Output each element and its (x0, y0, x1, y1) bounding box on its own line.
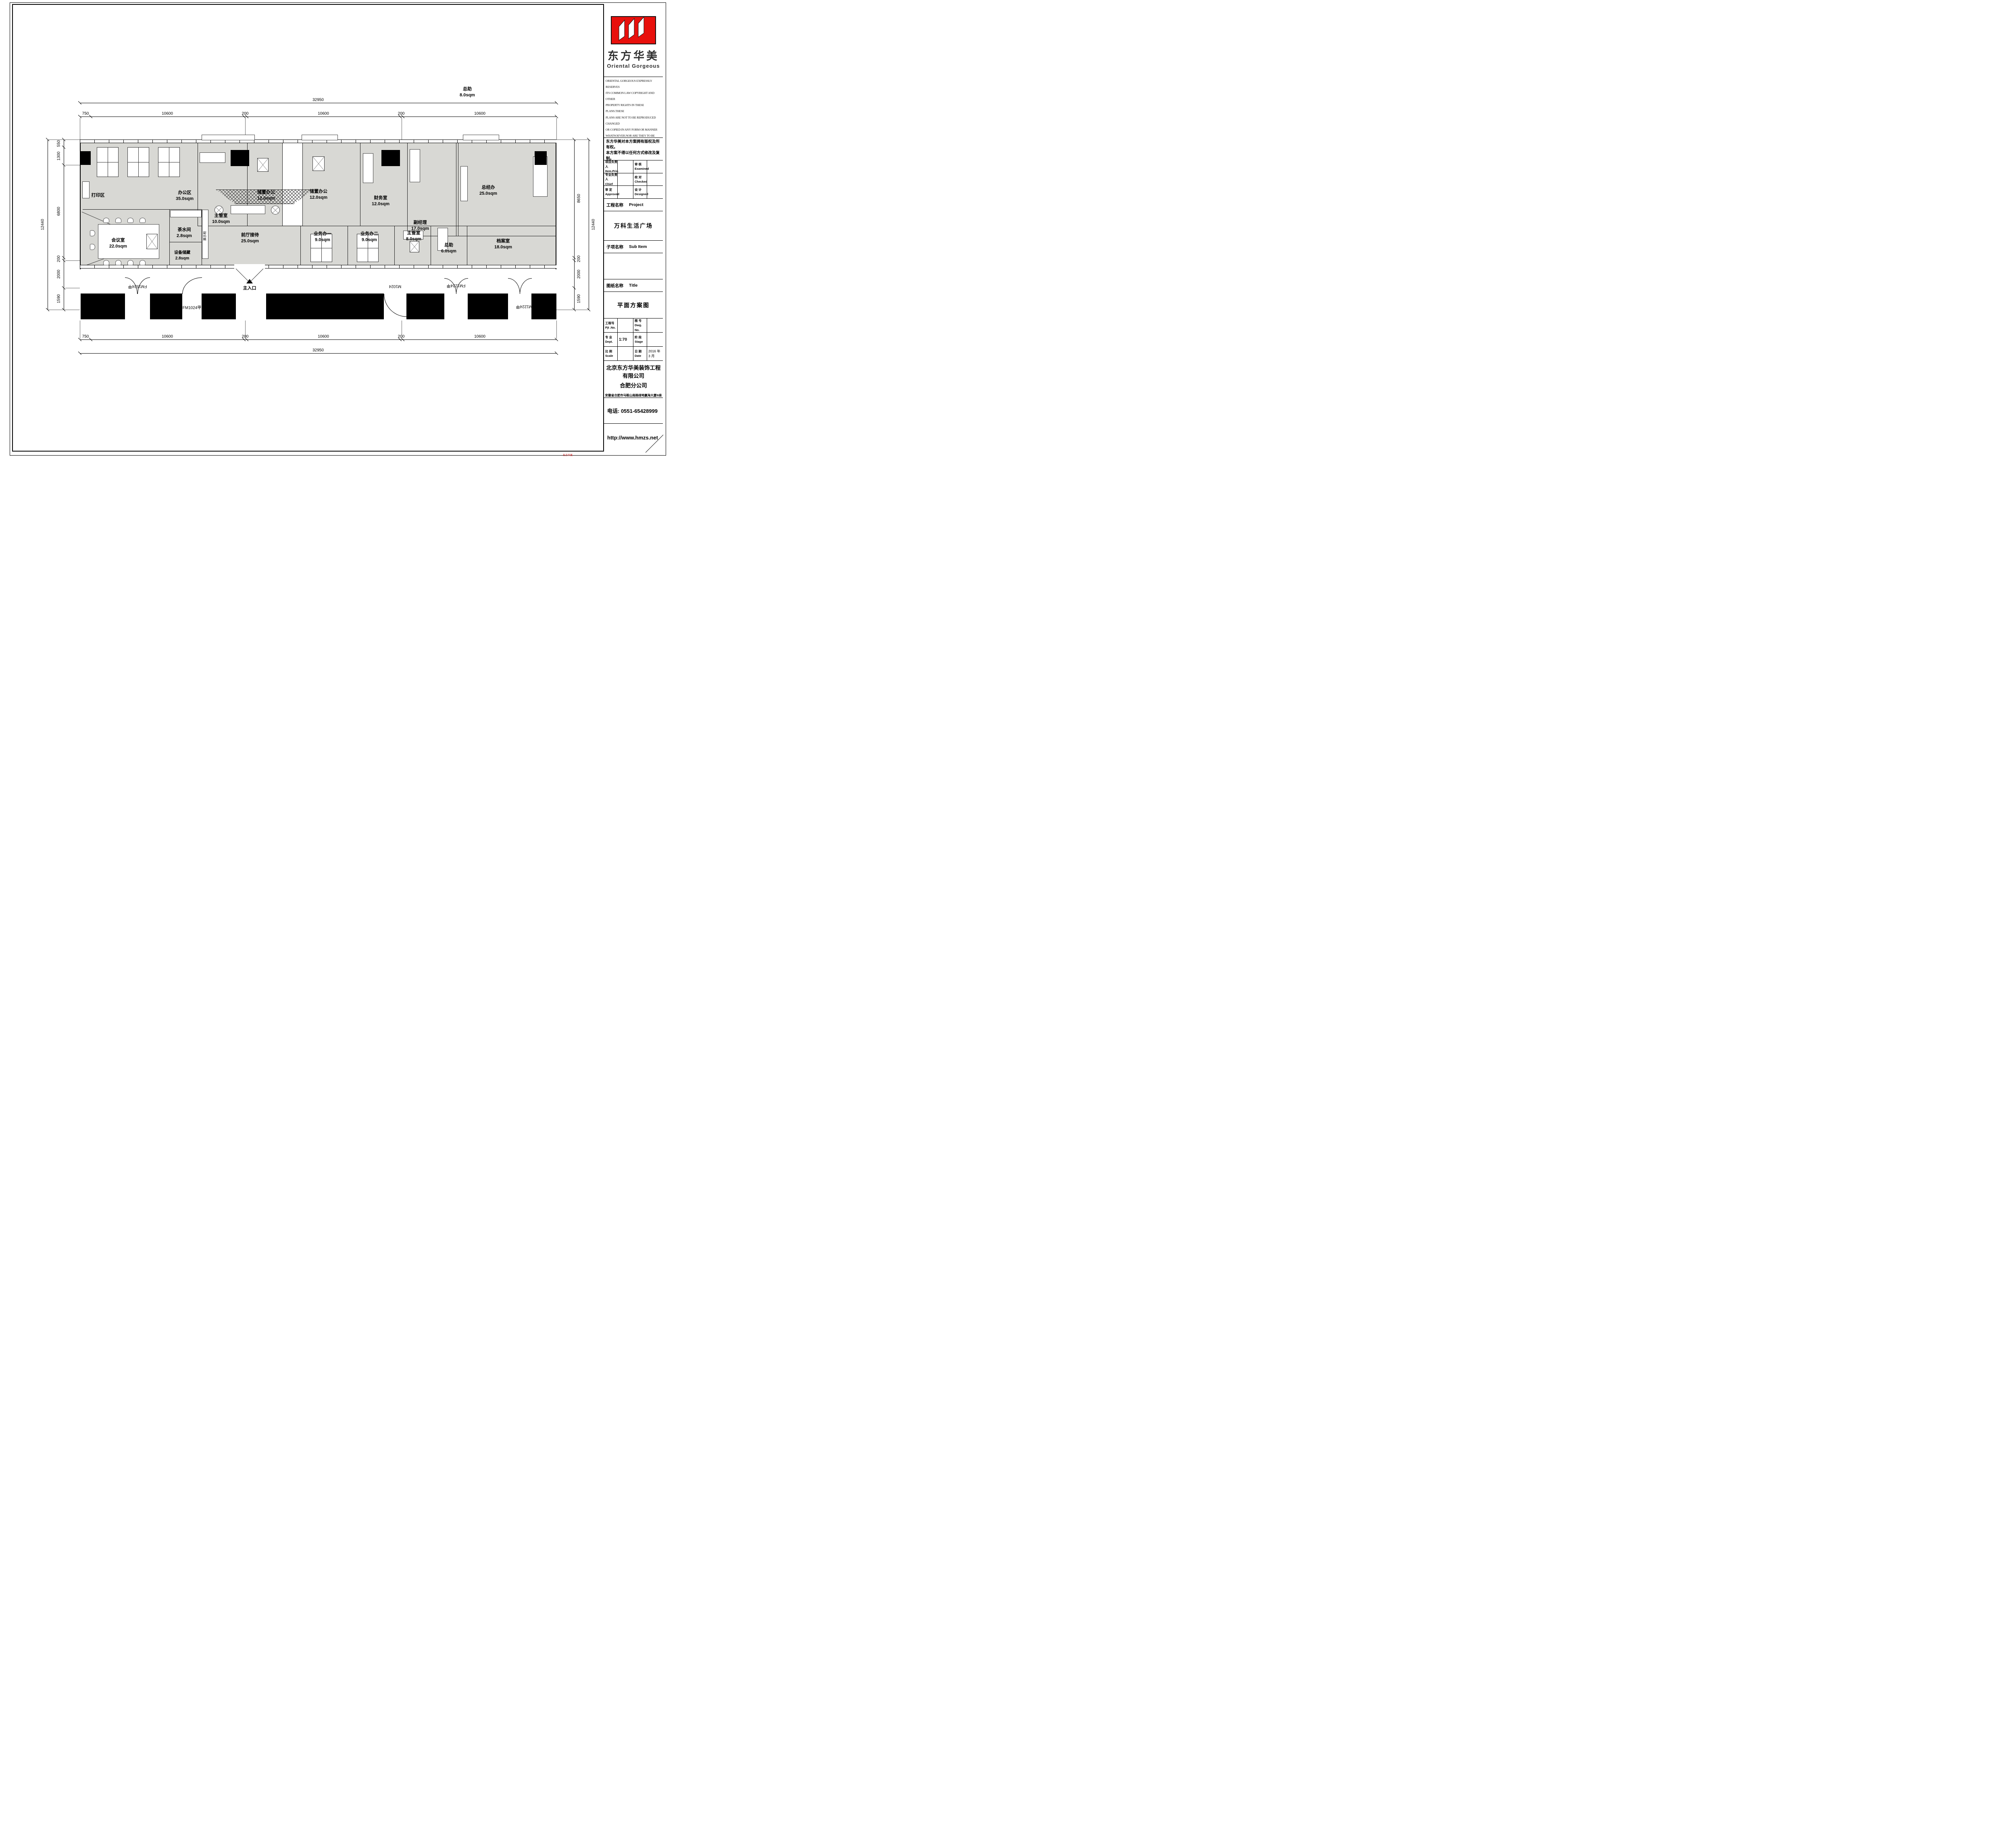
cell-value (647, 333, 663, 347)
room-name: 总助 (460, 86, 475, 92)
cell-value (618, 347, 633, 360)
room-name: 打印区 (92, 193, 105, 199)
extension-line (556, 310, 589, 310)
cell-item-prin: 项目负责人Item.Prin (604, 160, 618, 173)
room-name: 设备储藏 (174, 250, 190, 256)
copyright-en: ORIENTAL GORGEOUS EXPRESSLY RESERVES ITS… (604, 77, 663, 137)
cell-cn: 专业负责人 (605, 173, 617, 182)
window-wall-bottom (80, 265, 556, 269)
room-name: 财务室 (372, 195, 389, 201)
cell-stage: 阶 段Stage (633, 333, 647, 347)
cell-cn: 审 核 (635, 162, 647, 167)
cabinet (312, 156, 325, 171)
cell-chief: 专业负责人Chief (604, 173, 618, 186)
extension-line (556, 118, 557, 139)
room-label-print-area: 打印区 (92, 193, 105, 199)
facade-stub (463, 135, 499, 140)
copyright-line: ITS COMMON LAW COPYRIGHT AND OTHER (606, 90, 661, 102)
dim-right-total: 12440 (591, 219, 596, 230)
room-name: 总助 (441, 242, 456, 248)
counter (170, 210, 202, 217)
chair (103, 260, 109, 265)
door-label-m1024: M1024 (389, 284, 402, 289)
cell-en: Approved (605, 192, 617, 196)
cell-scale-value: 1:70 (618, 333, 633, 347)
company-section: 北京东方华美装饰工程有限公司 合肥分公司 安徽省合肥市马鞍山南路绿地赢海大厦B座… (604, 360, 663, 398)
dim-bot-750: 750 (82, 334, 89, 339)
dim-right-2000: 2000 (577, 270, 581, 279)
cell-cn: 设 计 (635, 187, 647, 192)
info-table: 工程号Pjt .No. 图 号Dwg. No. 专 业Dept. 1:70 阶 … (604, 318, 663, 360)
copyright-line: ORIENTAL GORGEOUS EXPRESSLY RESERVES (606, 78, 661, 90)
room-area: 8.0sqm (406, 236, 421, 242)
cell-en: Dept. (605, 339, 617, 344)
dim-line-top-chain (80, 117, 556, 117)
plant (271, 206, 280, 214)
column (231, 150, 249, 166)
room-area: 12.0sqm (372, 201, 389, 207)
cell-approved: 审 定Approved (604, 186, 618, 198)
room-area: 6.0sqm (441, 248, 456, 254)
cell-val: 1:70 (619, 337, 633, 342)
room-name: 储置办公 (257, 189, 275, 196)
door-label-fm1024: FM1024甲 (183, 304, 202, 310)
sheet-name-box: 平面方案图 (604, 291, 663, 318)
room-name: 储置办公 (310, 189, 327, 195)
desk (200, 152, 225, 163)
dim-left-total: 12440 (41, 219, 45, 230)
cell-value (618, 186, 633, 198)
cell-date: 日 期Date (633, 347, 647, 360)
room-label-tea-room: 茶水间2.8sqm (177, 227, 192, 239)
project-name-box: 万科生活广场 (604, 211, 663, 240)
dim-left-6800: 6800 (57, 207, 61, 216)
desk (363, 153, 373, 183)
column (535, 151, 547, 165)
partition (431, 226, 431, 265)
room-area: 9.0sqm (314, 237, 331, 243)
copyright-line: 东方华美对本方案拥有版权及所有权。 (606, 139, 661, 150)
company-address: 安徽省合肥市马鞍山南路绿地赢海大厦B座19楼 (604, 393, 663, 398)
extension-line (65, 288, 80, 288)
entrance-label: 主入口 (243, 285, 256, 291)
chair (127, 260, 133, 265)
partition (348, 226, 348, 265)
partition (169, 209, 170, 265)
cell-value (618, 160, 633, 173)
dim-right-8650: 8650 (577, 194, 581, 203)
subitem-label-en: Sub Item (629, 244, 647, 249)
cabinet (410, 241, 419, 252)
partition (302, 142, 303, 226)
cell-dept: 专 业Dept. (604, 333, 618, 347)
room-area: 18.0sqm (494, 244, 512, 250)
cell-en: Checked (635, 179, 647, 184)
room-label-equipment-storage: 设备储藏2.8sqm (174, 250, 190, 261)
dim-line-bottom-total (80, 353, 556, 354)
dim-line-right-chain (574, 139, 575, 310)
subitem-box (604, 253, 663, 279)
dim-bottom-total: 32950 (312, 348, 324, 352)
cell-en: Chief (605, 182, 617, 186)
dim-left-2000: 2000 (57, 270, 61, 279)
company-name-1: 北京东方华美装饰工程有限公司 (604, 363, 663, 379)
cell-en: Pjt .No. (605, 325, 617, 330)
dim-line-top-total (80, 103, 556, 103)
chair (127, 218, 133, 223)
cabinet (257, 158, 269, 172)
room-name: 前厅接待 (241, 232, 259, 238)
extension-line (402, 118, 402, 139)
door-label-fm1524: FM1524甲 (128, 284, 147, 290)
room-label-business-2: 业务办二9.0sqm (360, 231, 378, 243)
dim-line-right-total (589, 139, 589, 310)
room-area: 22.0sqm (109, 244, 127, 250)
wall-mass (150, 294, 182, 319)
cell-cn: 阶 段 (635, 335, 647, 339)
dim-left-1300: 1300 (57, 152, 61, 160)
dim-top-10600a: 10600 (162, 111, 173, 116)
project-label-en: Project (629, 202, 644, 207)
room-label-supervisor-1: 主管室10.0sqm (212, 213, 230, 225)
copyright-line: OR COPIED IN ANY FORM OR MANNER (606, 127, 661, 133)
dim-line-bottom-chain (80, 339, 556, 340)
wall-mass (81, 294, 125, 319)
partition (360, 142, 360, 226)
sheet-label-row: 图纸名称Title (604, 279, 663, 291)
room-area: 9.0sqm (360, 237, 378, 243)
door-label-fm1224-b: FM1224甲 (516, 304, 535, 310)
chair (90, 244, 95, 250)
cell-en: Examined (635, 167, 647, 171)
cell-val: 2016 年 3 月 (648, 349, 663, 358)
room-label-gm-office: 总经办25.0sqm (479, 185, 497, 197)
sheet-label-cn: 图纸名称 (606, 283, 623, 289)
cell-cn: 审 定 (605, 187, 617, 192)
phone-section: 电话: 0551-65428999 (604, 398, 663, 423)
room-name: 副经理 (411, 220, 429, 226)
wall-mass (468, 294, 508, 319)
dim-right-1590: 1590 (577, 294, 581, 303)
room-label-reception: 前厅接待25.0sqm (241, 232, 259, 244)
sofa (460, 166, 468, 201)
cell-value (618, 173, 633, 186)
room-label-business-1: 业务办一9.0sqm (314, 231, 331, 243)
desk-cluster (97, 147, 119, 177)
cell-checked: 校 对Checked (633, 173, 647, 186)
dim-left-200: 200 (57, 256, 61, 262)
extension-line (402, 321, 402, 339)
extension-line (48, 310, 80, 310)
dim-bot-10600a: 10600 (162, 334, 173, 339)
partition (407, 142, 408, 236)
dim-left-1590: 1590 (57, 294, 61, 303)
cell-cn: 专 业 (605, 335, 617, 339)
room-area: 8.0sqm (460, 92, 475, 98)
copyright-line: 本方案不得以任何方式修改及复制。 (606, 150, 661, 160)
cell-examined: 审 核Examined (633, 160, 647, 173)
cell-value (618, 319, 633, 333)
column (80, 151, 91, 165)
brand-cn: 东方华美 (604, 47, 663, 63)
cell-cn: 工程号 (605, 321, 617, 325)
company-name-2: 合肥分公司 (604, 381, 663, 389)
chair (103, 218, 109, 223)
room-name: 办公区 (176, 190, 194, 196)
project-label-row: 工程名称Project (604, 198, 663, 211)
cell-en: Designed (635, 192, 647, 196)
partition (394, 226, 395, 265)
cell-scale: 比 例Scale (604, 347, 618, 360)
cell-cn: 日 期 (635, 349, 647, 354)
room-area: 25.0sqm (241, 238, 259, 244)
projection-screen (146, 234, 158, 249)
dim-bot-10600b: 10600 (318, 334, 329, 339)
room-name: 主管室 (212, 213, 230, 219)
facade-stub (202, 135, 255, 140)
extension-line (65, 165, 80, 165)
chair (115, 260, 121, 265)
dim-right-200: 200 (577, 256, 581, 262)
room-label-archive: 档案室18.0sqm (494, 238, 512, 250)
dim-top-total: 32950 (312, 98, 324, 102)
dim-bot-10600c: 10600 (474, 334, 485, 339)
room-area: 35.0sqm (176, 196, 194, 202)
company-phone: 电话: 0551-65428999 (607, 407, 658, 414)
wall-mass (406, 294, 444, 319)
cell-en: Stage (635, 339, 647, 344)
extension-line (80, 321, 80, 339)
dim-top-10600c: 10600 (474, 111, 485, 116)
column (381, 150, 400, 166)
label-assistant-top: 总助 8.0sqm (460, 86, 475, 98)
drawing-sheet: 32950 750 10600 200 10600 200 10600 总助 8… (0, 0, 670, 458)
extension-line (80, 118, 80, 139)
cell-en: Date (635, 354, 647, 358)
room-label-meeting: 会议室22.0sqm (109, 237, 127, 250)
room-label-supervisor-2: 主管室8.0sqm (406, 230, 421, 242)
project-name: 万科生活广场 (614, 222, 653, 230)
extension-line (48, 139, 80, 140)
room-name: 业务办二 (360, 231, 378, 237)
brand-en: Oriental Gorgeous (604, 63, 663, 69)
chair (140, 260, 146, 265)
cell-pjt-no: 工程号Pjt .No. (604, 319, 618, 333)
partition (456, 142, 456, 236)
room-area: 12.0sqm (257, 196, 275, 202)
room-label-finance: 财务室12.0sqm (372, 195, 389, 207)
door-label-fm1224-a: FM1224甲 (447, 283, 466, 289)
room-name: 总经办 (479, 185, 497, 191)
room-label-assistant: 总助6.0sqm (441, 242, 456, 254)
cell-en: Dwg. No. (635, 323, 647, 332)
hall-table (231, 205, 265, 214)
room-area: 25.0sqm (479, 191, 497, 197)
copyright-line: PROPERTY RIGHTS IN THESE PLANS.THESE (606, 102, 661, 114)
wall-mass (266, 294, 384, 319)
cell-en: Scale (605, 354, 617, 358)
chair (140, 218, 146, 223)
chair (115, 218, 121, 223)
room-area: 2.8sqm (177, 233, 192, 239)
cell-value (647, 319, 663, 333)
room-label-storage-office-2: 储置办公12.0sqm (310, 189, 327, 201)
partition (282, 142, 283, 226)
partition (407, 236, 556, 236)
extension-line (556, 139, 589, 140)
room-area: 2.8sqm (174, 256, 190, 261)
partition (467, 226, 467, 265)
cell-cn: 项目负责人 (605, 160, 617, 169)
subitem-label-row: 子项名称Sub Item (604, 240, 663, 253)
room-name: 业务办一 (314, 231, 331, 237)
cell-date-value: 2016 年 3 月 (647, 347, 663, 360)
room-name: 茶水间 (177, 227, 192, 233)
room-area: 10.0sqm (212, 219, 230, 225)
room-label-office-area: 办公区35.0sqm (176, 190, 194, 202)
personnel-table: 项目负责人Item.Prin 审 核Examined 专业负责人Chief 校 … (604, 160, 663, 198)
desk-cluster (158, 147, 180, 177)
display-cabinet-label: 展示柜 (203, 231, 207, 241)
company-website: http://www.hmzs.net (607, 435, 658, 441)
partition (83, 209, 202, 210)
sheet-name: 平面方案图 (617, 301, 650, 309)
partition (300, 226, 301, 265)
extension-line (556, 321, 557, 339)
subitem-label-cn: 子项名称 (606, 244, 623, 250)
wall-mass (531, 294, 556, 319)
project-label-cn: 工程名称 (606, 202, 623, 208)
cell-cn: 比 例 (605, 349, 617, 354)
cell-cn: 校 对 (635, 175, 647, 179)
title-block: 东方华美 Oriental Gorgeous ORIENTAL GORGEOUS… (603, 4, 663, 452)
wall-right (556, 139, 556, 269)
room-label-storage-office-1: 储置办公12.0sqm (257, 189, 275, 202)
dim-line-left-total (48, 139, 48, 310)
room-name: 主管室 (406, 230, 421, 236)
room-name: 档案室 (494, 238, 512, 244)
cell-dwg-no: 图 号Dwg. No. (633, 319, 647, 333)
dim-top-750: 750 (82, 111, 89, 116)
chair (90, 230, 95, 236)
printer (82, 181, 90, 198)
entrance-opening (234, 264, 265, 269)
cell-value (647, 173, 663, 186)
cell-value (647, 186, 663, 198)
cell-designed: 设 计Designed (633, 186, 647, 198)
watermark: 东方华美 (563, 453, 573, 457)
sheet-label-en: Title (629, 283, 637, 288)
company-logo-icon (611, 16, 656, 44)
corridor (282, 142, 302, 225)
cell-value (647, 160, 663, 173)
wall-mass (202, 294, 236, 319)
extension-line (245, 321, 246, 339)
desk-cluster (127, 147, 149, 177)
dim-top-10600b: 10600 (318, 111, 329, 116)
room-area: 12.0sqm (310, 195, 327, 201)
logo-section: 东方华美 Oriental Gorgeous (604, 4, 663, 77)
extension-line (65, 260, 80, 261)
copyright-line: WHATSOEVER.NOR ARE THEY TO BE ASSIGHED (606, 133, 661, 137)
dim-left-550: 550 (57, 140, 61, 147)
copyright-line: PLANS ARE NOT TO BE REPRODUCED CHANGED (606, 115, 661, 127)
room-name: 会议室 (109, 237, 127, 244)
cell-cn: 图 号 (635, 319, 647, 323)
copyright-cn: 东方华美对本方案拥有版权及所有权。 本方案不得以任何方式修改及复制。 未经东方华… (604, 137, 663, 160)
partition (458, 142, 458, 236)
desk (410, 149, 420, 182)
facade-stub (302, 135, 338, 140)
partition (169, 242, 202, 242)
